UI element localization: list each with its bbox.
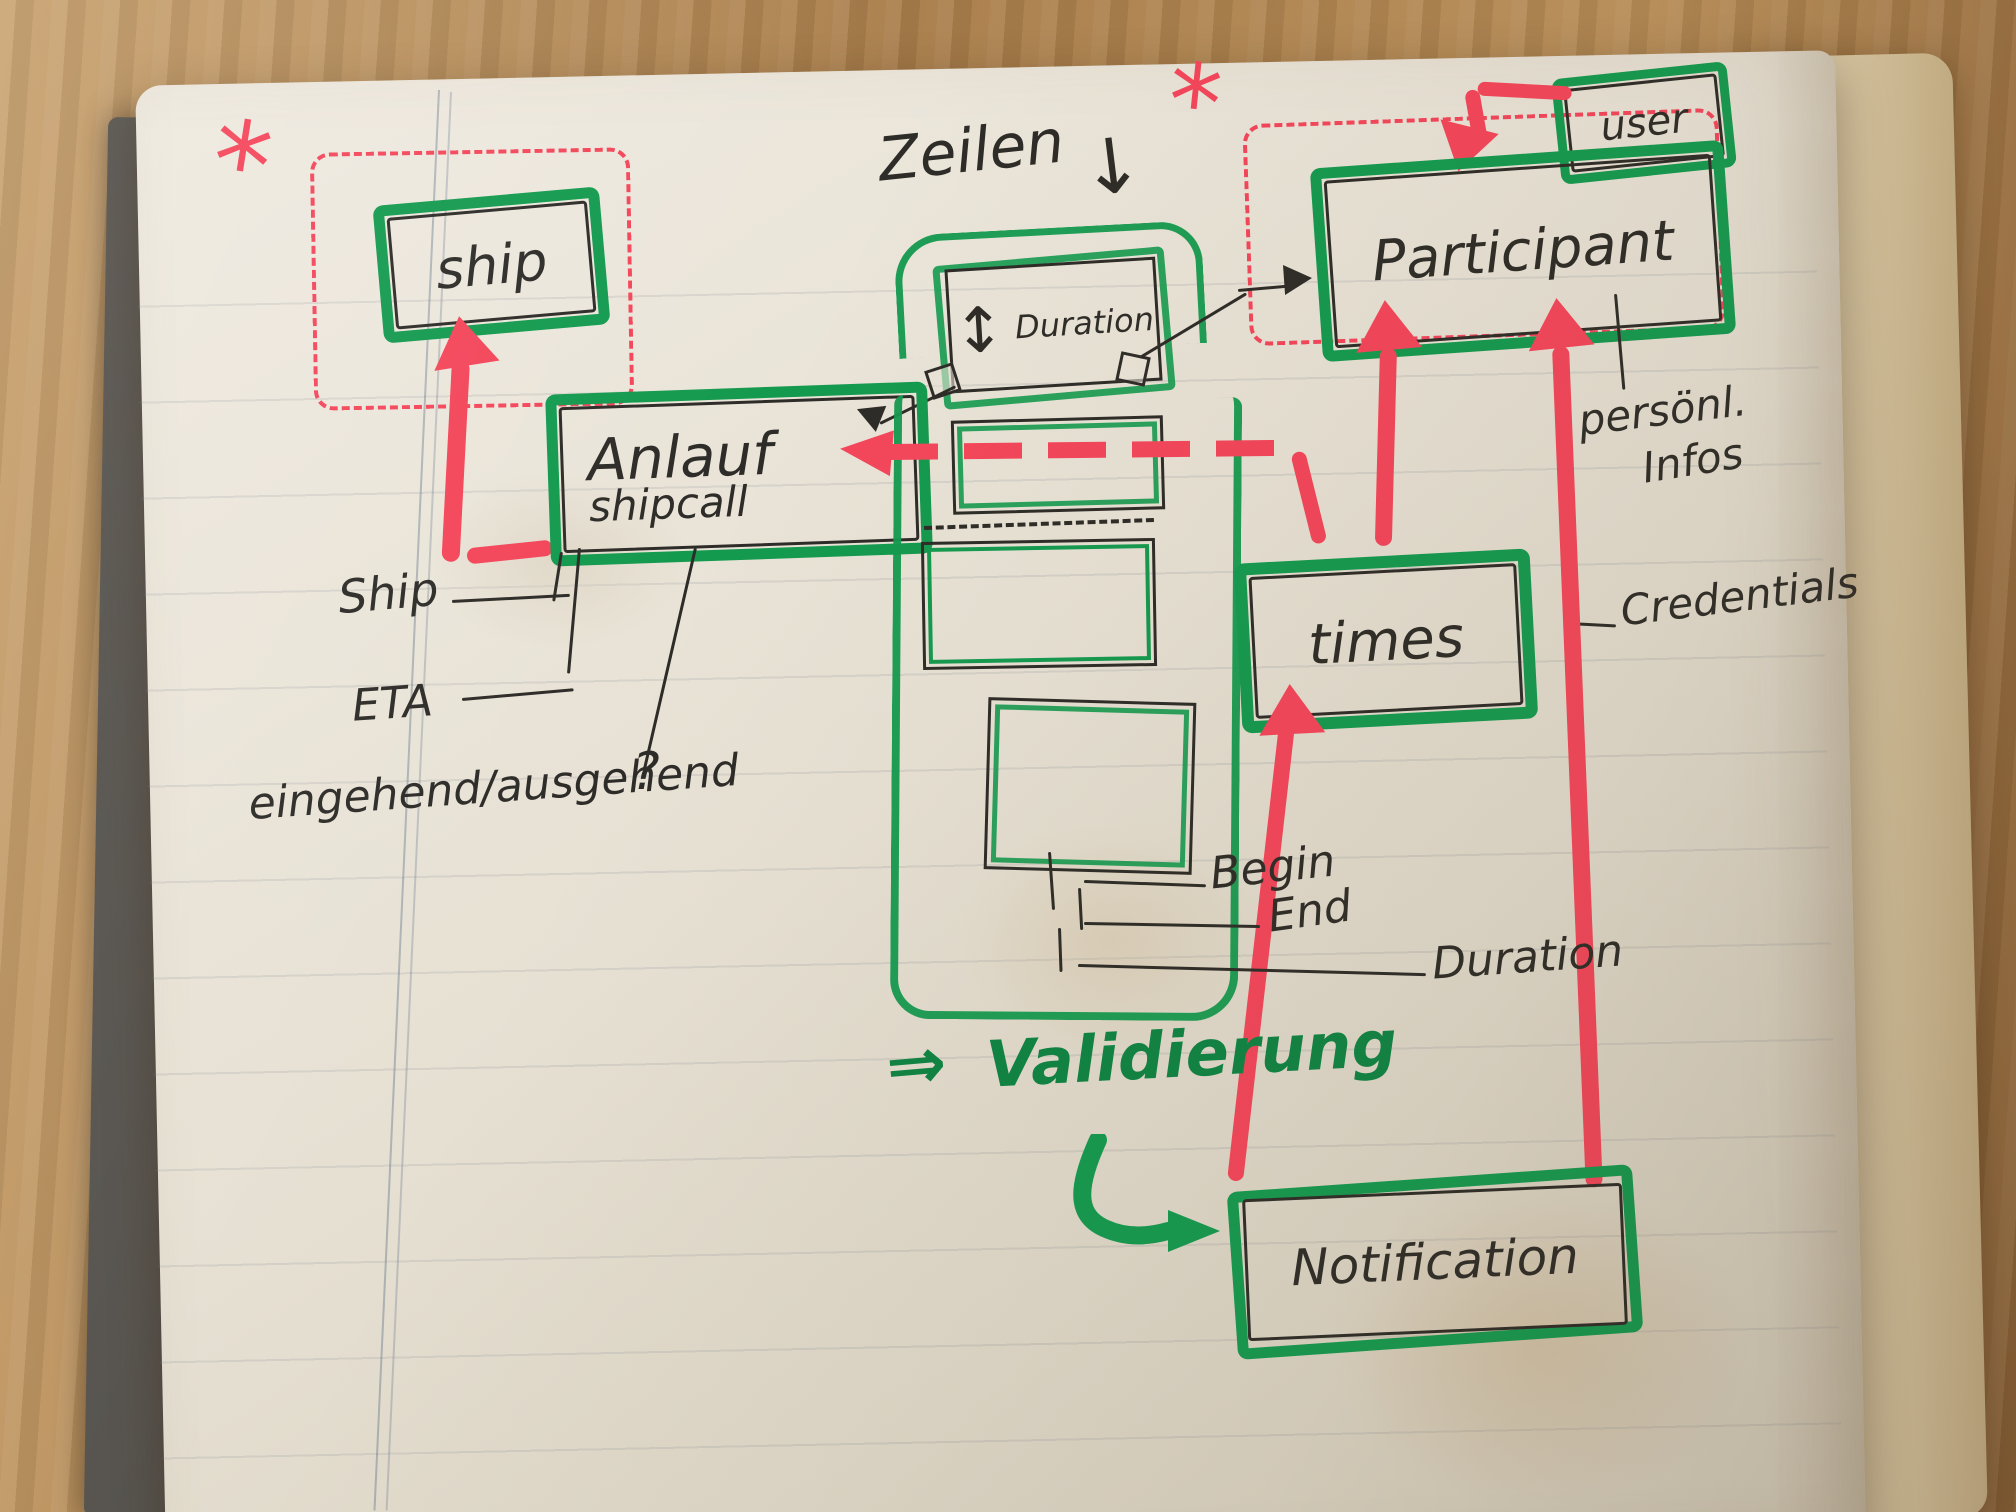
duration-port-right xyxy=(1115,351,1151,387)
ship-label: ship xyxy=(433,229,550,301)
arrow-notification-to-times-head xyxy=(1257,682,1326,735)
validierung-arrow-icon: ⇒ xyxy=(882,1020,949,1109)
arrow-times-to-participant-head xyxy=(1352,297,1422,353)
arrow-row-to-anlauf-head xyxy=(838,426,894,476)
notification-node-inner: Notification xyxy=(1242,1183,1628,1341)
arrow-notification-to-participant-head xyxy=(1524,295,1595,352)
anlauf-sublabel: shipcall xyxy=(588,482,748,525)
validation-to-notification-arrow xyxy=(1068,1134,1238,1264)
notebook-photo: * * ship Zeilen ↓ ↕ Duration user xyxy=(0,0,2016,1512)
anlauf-attr-ship: Ship xyxy=(336,562,441,625)
anlauf-attr-eta: ETA xyxy=(350,675,434,732)
duration-resize-arrow-icon: ↕ xyxy=(951,292,1007,368)
row-box-1 xyxy=(951,415,1165,515)
row-box-2 xyxy=(927,544,1151,664)
participant-label: Participant xyxy=(1370,208,1676,294)
duration-label: Duration xyxy=(1014,300,1155,346)
link-duration-participant-head xyxy=(1283,263,1313,295)
zeilen-down-arrow-icon: ↓ xyxy=(1075,118,1149,214)
notification-node: Notification xyxy=(1227,1164,1644,1360)
anlauf-attr-inout-question: ? xyxy=(632,742,660,802)
notification-label: Notification xyxy=(1290,1227,1580,1297)
times-label: times xyxy=(1307,604,1466,677)
row-box-3 xyxy=(984,697,1197,875)
